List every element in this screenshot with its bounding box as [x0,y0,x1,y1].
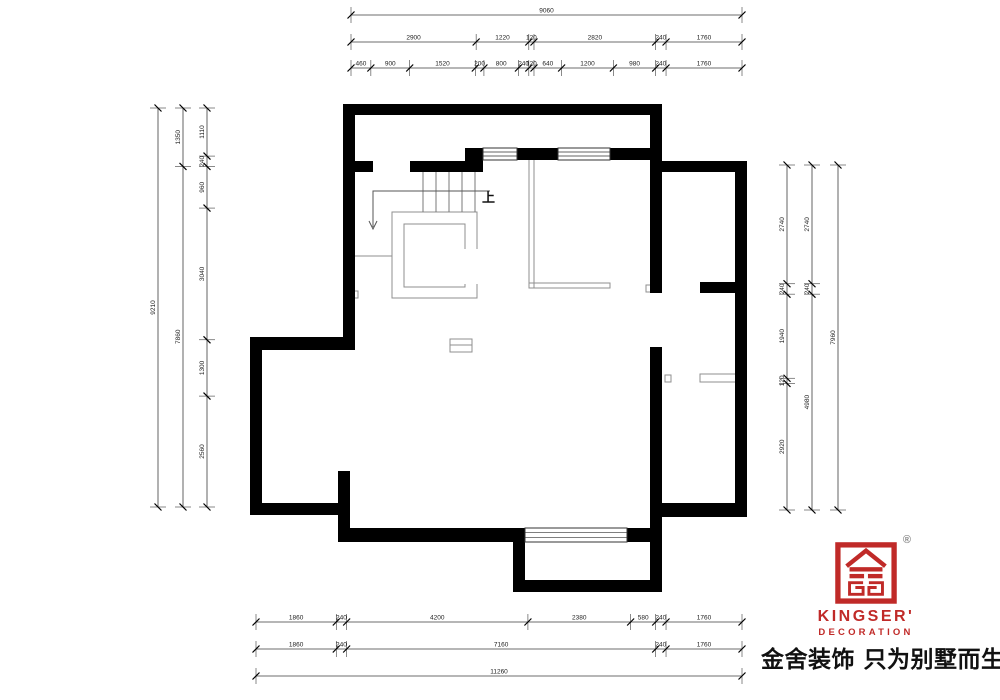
dim-label: 1760 [697,642,712,649]
wall-segment [700,282,738,293]
emblem-wrap: ® [835,540,897,604]
wall-segment [650,347,662,592]
dim-label: 1860 [289,642,304,649]
dim-label: 2380 [572,615,587,622]
brand-subtitle: DECORATION [786,627,946,638]
dim-label: 2740 [779,217,786,232]
dim-label: 200 [474,61,485,68]
fixture-outline [700,374,737,382]
dim-label: 120 [526,35,537,42]
dim-label: 4980 [804,394,811,409]
fixture-outline [404,224,465,287]
dim-label: 7160 [494,642,509,649]
dim-label: 1300 [199,360,206,375]
fixture-outline [665,375,671,382]
wall-segment [355,161,373,172]
dim-label: 1760 [697,35,712,42]
dim-label: 2740 [804,217,811,232]
brand-name: KINGSER' [786,608,946,626]
wall-segment [465,148,483,172]
dim-label: 11260 [490,669,508,676]
dim-label: 120 [526,61,537,68]
dim-label: 2560 [199,444,206,459]
dim-label: 1860 [289,615,304,622]
dim-label: 240 [655,35,666,42]
wall-segment [250,337,262,515]
fixture-outline [529,283,610,288]
dim-label: 1200 [580,61,595,68]
registered-mark: ® [903,534,911,546]
fixture-outline [529,158,534,288]
floorplan-page: 上906029001220120282024017604609001520200… [0,0,1000,700]
wall-segment [627,528,650,542]
dim-label: 1110 [199,125,206,139]
dim-label: 240 [655,615,666,622]
dim-label: 1220 [495,35,510,42]
dim-label: 460 [355,61,366,68]
dim-label: 580 [638,615,649,622]
dim-label: 240 [655,61,666,68]
kingser-emblem-icon [835,540,897,604]
dim-label: 7960 [830,330,837,345]
dim-label: 2900 [406,35,421,42]
wall-segment [250,503,350,515]
brand-logo: ® KINGSER' DECORATION [786,540,946,638]
opening-mask [464,249,479,284]
dim-label: 1520 [435,61,450,68]
wall-segment [343,104,355,348]
dim-label: 1760 [697,615,712,622]
dim-label: 1350 [175,130,182,145]
dim-label: 3040 [199,266,206,281]
dim-label: 4200 [430,615,445,622]
wall-segment [250,337,355,350]
dim-label: 240 [655,642,666,649]
dim-label: 240 [336,615,347,622]
dim-label: 240 [199,155,206,166]
wall-segment [343,104,662,115]
wall-segment [513,580,662,592]
wall-segment [610,148,652,160]
dim-label: 1760 [697,61,712,68]
dim-label: 1940 [779,329,786,344]
dim-label: 9210 [150,300,157,315]
dim-label: 9060 [539,8,554,15]
dim-label: 120 [779,375,786,386]
dim-label: 7860 [175,329,182,344]
wall-segment [735,161,747,517]
stair-direction-arrow [373,191,490,227]
brand-tagline: 金舍装饰 只为别墅而生。 [761,640,993,674]
up-label: 上 [482,191,495,206]
window [525,528,627,542]
dim-label: 240 [779,283,786,294]
dim-label: 240 [804,283,811,294]
dim-label: 2820 [588,35,603,42]
dim-label: 800 [496,61,507,68]
dim-label: 900 [385,61,396,68]
wall-segment [662,503,747,517]
dim-label: 960 [199,181,206,192]
wall-segment [338,528,525,542]
wall-segment [650,104,662,293]
dim-label: 980 [629,61,640,68]
dim-label: 2920 [779,439,786,454]
window [483,148,517,160]
dim-label: 240 [336,642,347,649]
dim-label: 640 [542,61,553,68]
window [558,148,610,160]
wall-segment [662,161,747,172]
wall-segment [517,148,558,160]
